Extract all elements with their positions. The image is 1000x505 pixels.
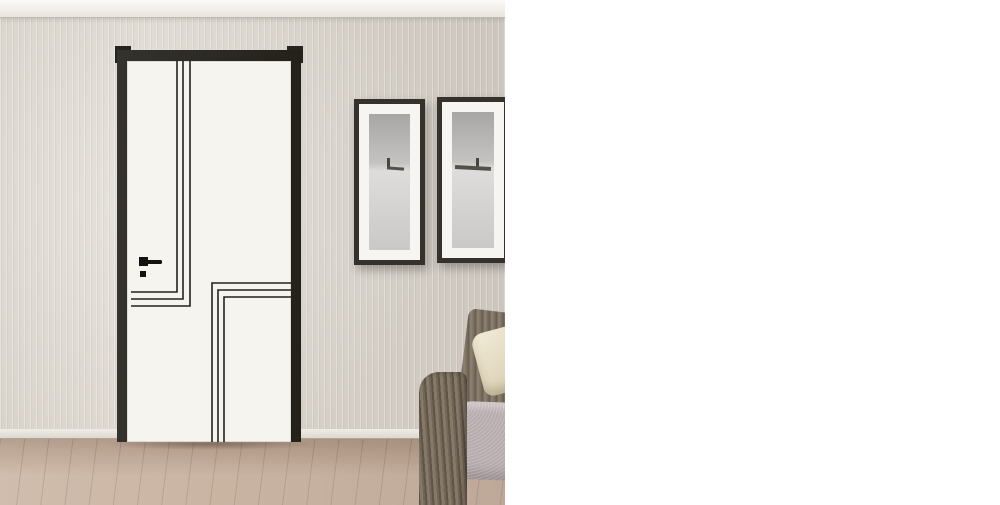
door-panel — [127, 61, 291, 442]
pier-silhouette — [455, 165, 491, 171]
door-inlay-pattern — [127, 61, 291, 442]
left-page-room-photo: ✣ GD-017 ✣ 15 定制生活·想你所想 CUSTOMIZE LIFE T… — [0, 0, 505, 505]
sofa — [413, 306, 505, 505]
crown-molding — [0, 0, 505, 18]
picture-frame-right — [437, 97, 505, 263]
door-gd-017 — [117, 46, 301, 442]
picture-frame-left — [354, 99, 425, 265]
catalog-spread: ✣ GD-017 ✣ 15 定制生活·想你所想 CUSTOMIZE LIFE T… — [0, 0, 1000, 505]
pier-photo — [369, 114, 410, 250]
sofa-arm — [419, 372, 467, 505]
pier-photo — [452, 112, 494, 248]
door-handle — [139, 257, 162, 277]
pier-silhouette — [387, 166, 404, 170]
